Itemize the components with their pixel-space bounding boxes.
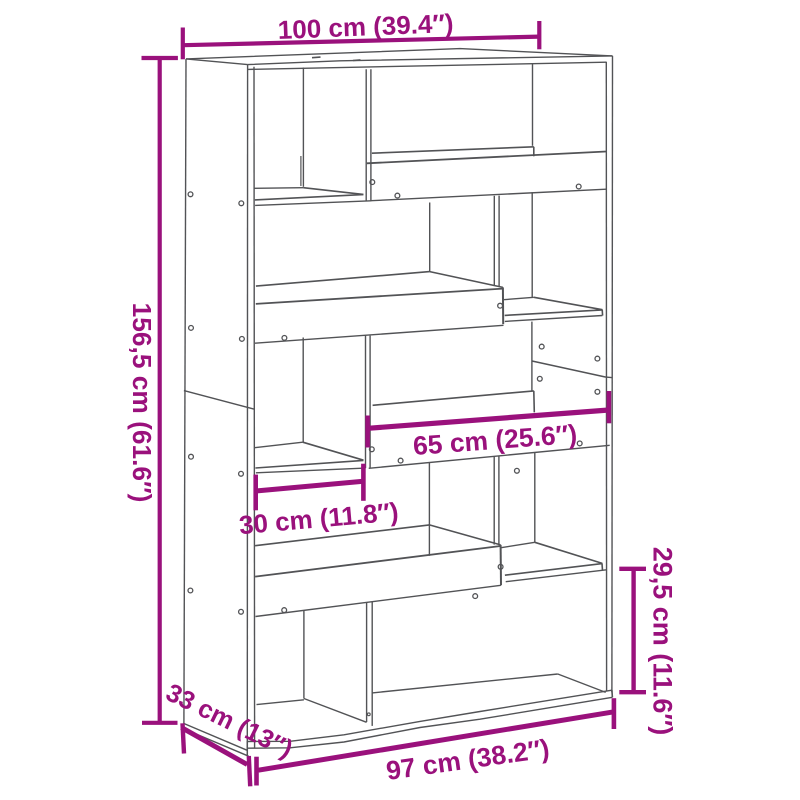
svg-text:29,5 cm (11.6″): 29,5 cm (11.6″) [648, 547, 678, 736]
svg-text:156,5 cm (61.6″): 156,5 cm (61.6″) [127, 303, 157, 503]
